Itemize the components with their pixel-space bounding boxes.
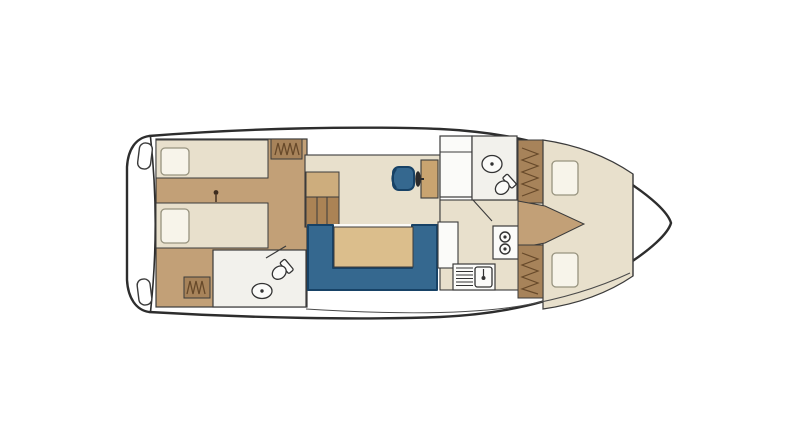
sink-icon [252, 284, 272, 299]
wardrobe [271, 139, 302, 159]
wet-bar-cabinet [440, 136, 472, 197]
stern-fender [136, 278, 152, 305]
wardrobe [184, 277, 210, 298]
floorplan-canvas [0, 0, 800, 446]
wardrobe [518, 140, 543, 203]
pillow [552, 161, 578, 195]
stove-icon [493, 226, 519, 259]
stern-fender [137, 142, 153, 169]
aft-bathroom [213, 246, 306, 307]
companionway-stairs [306, 172, 339, 227]
galley-sink-unit [453, 264, 495, 290]
boat-floor-plan [0, 0, 800, 446]
pillow [552, 253, 578, 287]
sink-icon [482, 156, 502, 173]
pillow [161, 148, 189, 175]
dining-table [334, 227, 413, 267]
pillow [161, 209, 189, 243]
wardrobe [518, 245, 543, 298]
galley-cabinet [438, 222, 458, 268]
